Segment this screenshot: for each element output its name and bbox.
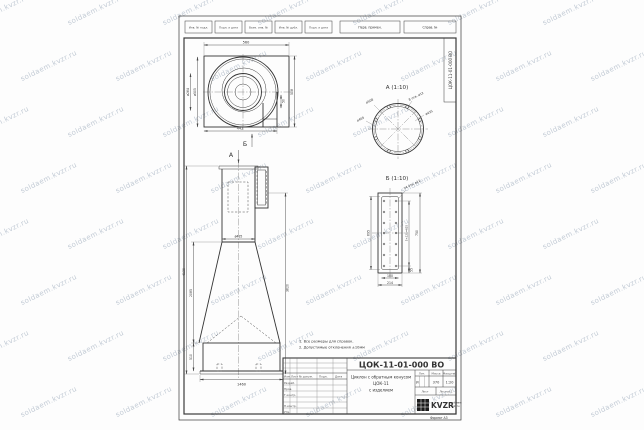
stamp-box-label: Справ. №: [422, 26, 437, 30]
view-b-title: Б (1:10): [386, 176, 409, 182]
title-block: Изм. Лист № докум. Подп. Дата Разраб. Пр…: [283, 358, 462, 420]
dim-label: 508: [290, 89, 294, 95]
tb-row-label: Утв.: [284, 410, 290, 414]
sheet-frame: [179, 16, 461, 420]
stamp-box-label: Перв. примен.: [358, 26, 381, 30]
top-view: 560 442 508 50 ø264 ø505 Б: [186, 41, 297, 149]
doc-number: ЦОК-11-01-000 ВО: [359, 361, 445, 370]
logo-subtext: soldaem: [451, 401, 462, 405]
dim-label: 2085: [189, 289, 193, 297]
tb-header: Подп.: [319, 375, 328, 379]
dim-label: 4130: [182, 268, 186, 276]
dim-label: 442: [237, 127, 244, 131]
view-b-marker: Б: [243, 141, 247, 148]
dim-label: 695: [367, 230, 371, 236]
tb-sheets-label: Листов 1: [439, 390, 452, 394]
doc-number-vertical: ЦОК-11-01-000 ВО: [448, 51, 453, 89]
top-stamp-row: Инв. № подл. Подп. и дата Взам. инв. № И…: [185, 21, 456, 33]
dim-label: 5×125=625: [405, 224, 409, 241]
tb-row-label: Н.контр.: [284, 404, 297, 408]
tb-row-label: Пров.: [284, 387, 292, 391]
part-name-line1: Циклон с обратным конусом: [351, 375, 411, 380]
stamp-box-label: Инв. № подл.: [189, 26, 208, 30]
stamp-box-label: Подп. и дата: [309, 26, 328, 30]
view-a-marker: А: [229, 152, 234, 159]
tb-sheet-label: Лист: [421, 390, 428, 394]
tb-header: Масштаб: [443, 372, 457, 376]
tb-header: № докум.: [299, 375, 313, 379]
notes: 1. Все размеры для справок. 2. Допустимы…: [299, 340, 365, 350]
tb-mass-value: 370: [433, 381, 440, 385]
tb-scale-value: 1:20: [446, 381, 454, 385]
note-line: 2. Допустимые отклонения ±10мм: [299, 346, 365, 350]
tb-row-label: Т.контр.: [283, 393, 296, 397]
dim-label: ø465: [356, 116, 365, 123]
view-a-title: А (1:10): [386, 85, 409, 91]
dim-label: ø505: [193, 88, 197, 96]
dim-label: 180: [387, 274, 393, 278]
dim-label: 1460: [237, 383, 246, 387]
doc-number-sidebar: ЦОК-11-01-000 ВО: [444, 38, 456, 102]
dim-label: 510: [189, 354, 193, 360]
screenshot: soldaem.kvzr.rusoldaem.kvzr.rusoldaem.kv…: [0, 0, 644, 430]
logo-subtext: kvzr.ru: [451, 404, 460, 408]
drawing-sheet: Инв. № подл. Подп. и дата Взам. инв. № И…: [0, 0, 644, 430]
tb-header: Изм.: [284, 375, 291, 379]
stamp-box-label: Подп. и дата: [219, 26, 238, 30]
tb-header: Масса: [432, 372, 441, 376]
tb-lit-value: И: [416, 381, 419, 385]
view-a: А (1:10) 8 отв. ø12 ø508 ø465 ø435: [356, 85, 433, 159]
kvzr-logo-icon: [417, 399, 429, 411]
view-b: Б (1:10) 14 отв. ø12 695: [367, 176, 423, 287]
tb-row-label: Разраб.: [284, 381, 295, 385]
tb-header: Лист: [291, 375, 298, 379]
dim-label: 50: [282, 99, 286, 103]
tb-header: Лит.: [419, 372, 426, 376]
note-line: 1. Все размеры для справок.: [299, 340, 353, 344]
part-name-line2: ЦОК-11: [373, 381, 389, 386]
dim-label: ø508: [365, 98, 374, 105]
dim-label: 750: [415, 230, 419, 236]
dim-label: 3620: [286, 284, 290, 292]
dim-label: ø435: [235, 235, 243, 239]
tb-header: Дата: [335, 375, 343, 379]
dim-label: ø264: [186, 88, 190, 96]
flange-holes: [383, 200, 397, 267]
dim-label: 214: [387, 281, 393, 285]
dim-label: ø435: [425, 109, 434, 116]
dim-label: 55: [410, 268, 414, 272]
stamp-box-label: Взам. инв. №: [249, 26, 268, 30]
front-view: А ø43: [182, 150, 290, 387]
holes-label: 8 отв. ø12: [408, 91, 424, 102]
part-name-line3: с изделием: [369, 388, 393, 393]
format-label: Формат А3: [430, 416, 448, 420]
stamp-box-label: Инв. № дубл.: [279, 26, 298, 30]
dim-label: 560: [243, 41, 250, 45]
